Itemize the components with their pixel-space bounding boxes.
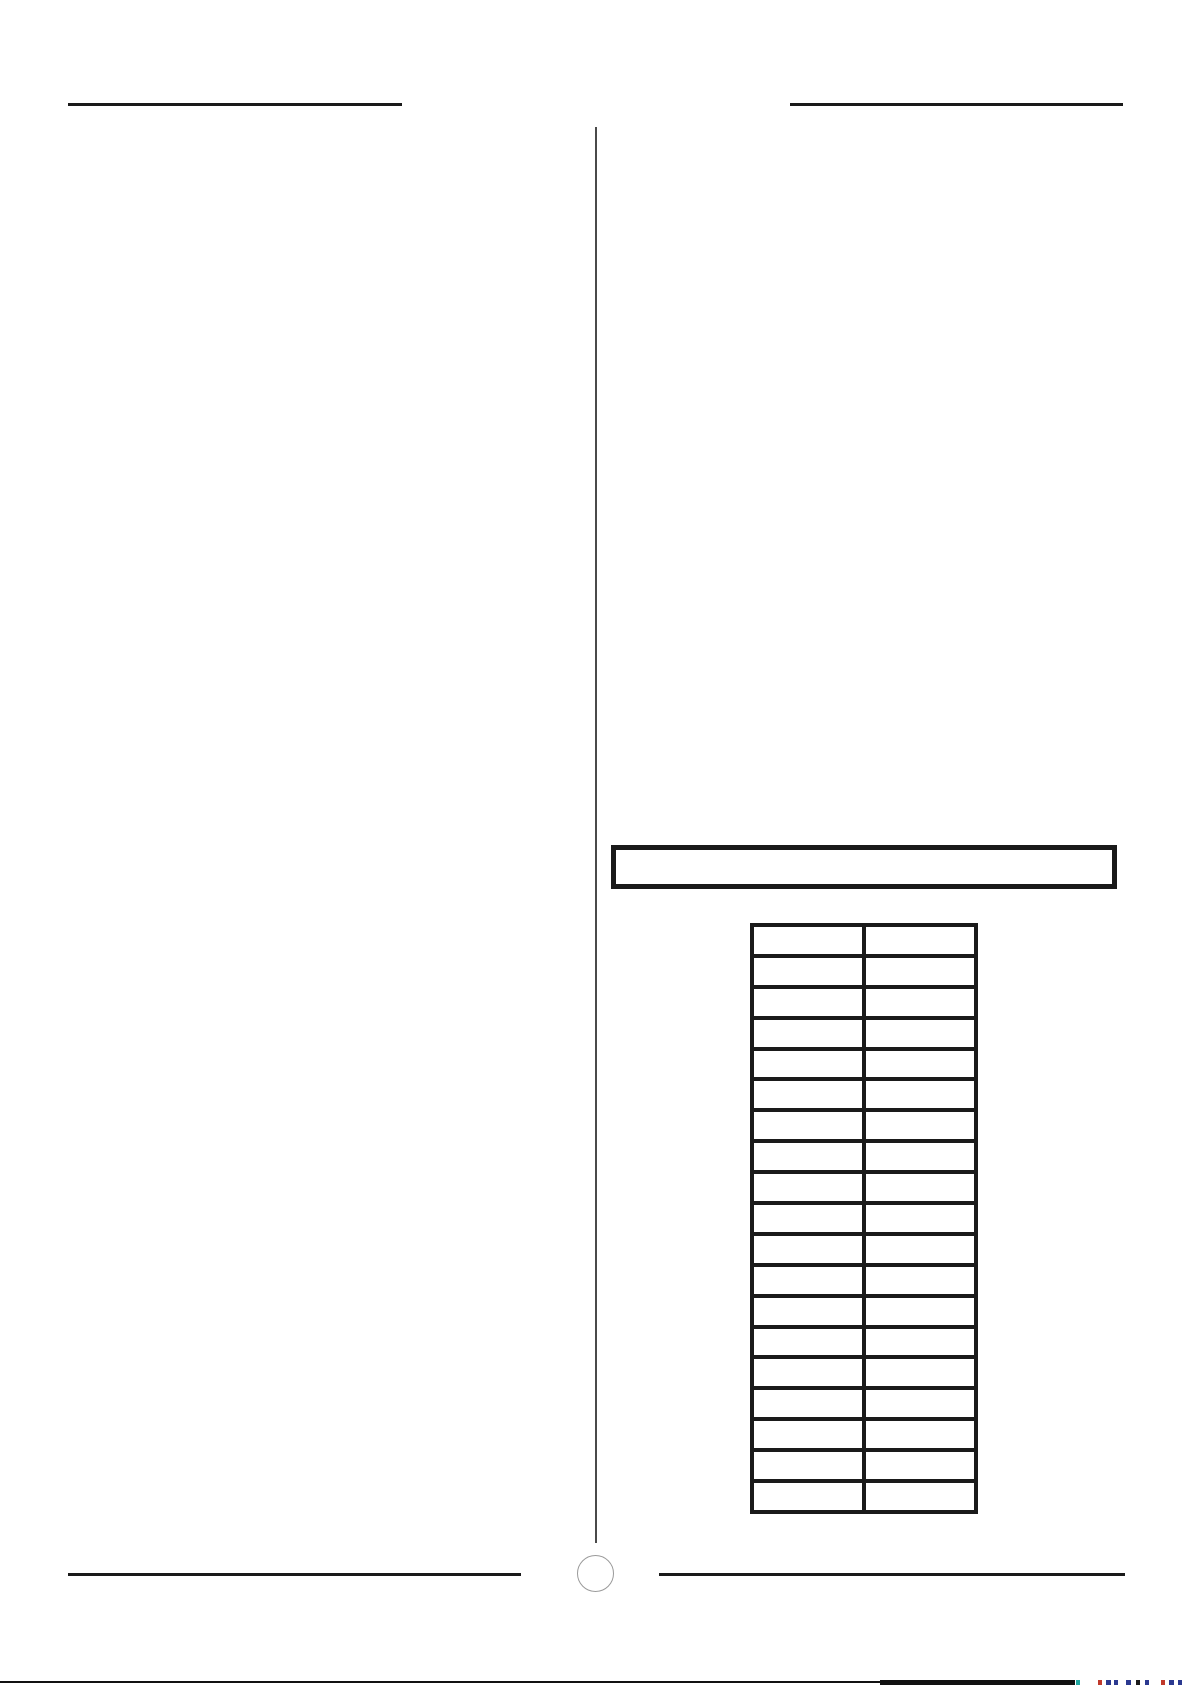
table-row: [752, 1388, 976, 1419]
header-rule-left: [68, 103, 402, 106]
table-row: [752, 1172, 976, 1203]
table-row: [752, 1018, 976, 1049]
bottom-edge-text-fragment: [1169, 1680, 1174, 1685]
blank-table: [750, 923, 978, 1514]
table-cell: [752, 1296, 864, 1327]
table-row: [752, 1357, 976, 1388]
table-row: [752, 925, 976, 956]
table-row: [752, 1450, 976, 1481]
table-cell: [752, 1018, 864, 1049]
table-cell: [752, 1450, 864, 1481]
table-cell: [864, 1018, 976, 1049]
table-row: [752, 1079, 976, 1110]
table-cell: [864, 925, 976, 956]
table-row: [752, 1265, 976, 1296]
table-cell: [864, 1388, 976, 1419]
empty-title-box: [611, 845, 1117, 889]
table-cell: [864, 1265, 976, 1296]
blank-table-body: [752, 925, 976, 1512]
bottom-edge-fragments: [0, 1679, 1192, 1685]
table-cell: [864, 1450, 976, 1481]
table-row: [752, 1141, 976, 1172]
table-row: [752, 1419, 976, 1450]
table-cell: [752, 925, 864, 956]
bottom-edge-text-fragment: [1106, 1680, 1111, 1685]
table-row: [752, 1296, 976, 1327]
table-row: [752, 1234, 976, 1265]
table-row: [752, 1110, 976, 1141]
table-cell: [752, 1265, 864, 1296]
table-cell: [752, 956, 864, 987]
table-cell: [864, 1296, 976, 1327]
bottom-edge-text-fragment: [1136, 1680, 1140, 1685]
table-cell: [752, 1419, 864, 1450]
table-row: [752, 956, 976, 987]
table-row: [752, 987, 976, 1018]
table-cell: [864, 1049, 976, 1080]
table-row: [752, 1327, 976, 1358]
footer-rule-left: [68, 1573, 521, 1576]
table-cell: [864, 1357, 976, 1388]
table-cell: [752, 1388, 864, 1419]
bottom-edge-text-fragment: [1114, 1680, 1118, 1685]
bottom-edge-text-fragment: [1098, 1680, 1102, 1685]
table-cell: [864, 1141, 976, 1172]
table-cell: [864, 1172, 976, 1203]
table-cell: [752, 1357, 864, 1388]
table-cell: [752, 1110, 864, 1141]
table-cell: [864, 1327, 976, 1358]
table-cell: [864, 1079, 976, 1110]
footer-rule-right: [659, 1573, 1125, 1576]
table-cell: [864, 1203, 976, 1234]
table-cell: [752, 1141, 864, 1172]
bottom-edge-text-fragment: [1076, 1680, 1080, 1685]
bottom-edge-text-fragment: [1126, 1680, 1131, 1685]
header-rule-right: [790, 103, 1123, 106]
table-cell: [864, 956, 976, 987]
table-cell: [864, 1419, 976, 1450]
table-cell: [752, 987, 864, 1018]
table-cell: [752, 1079, 864, 1110]
table-cell: [864, 1481, 976, 1512]
bottom-edge-text-fragment: [1161, 1680, 1165, 1685]
table-row: [752, 1049, 976, 1080]
table-cell: [864, 1110, 976, 1141]
bottom-edge-text-fragment: [1178, 1680, 1182, 1685]
table-cell: [752, 1172, 864, 1203]
table-row: [752, 1481, 976, 1512]
table-cell: [752, 1481, 864, 1512]
page-number-circle: [577, 1555, 614, 1592]
table-cell: [864, 987, 976, 1018]
table-cell: [752, 1234, 864, 1265]
bottom-edge-text-fragment: [1145, 1680, 1149, 1685]
table-cell: [864, 1234, 976, 1265]
table-cell: [752, 1203, 864, 1234]
table-cell: [752, 1049, 864, 1080]
column-divider: [595, 127, 597, 1543]
document-page: [0, 0, 1192, 1685]
table-row: [752, 1203, 976, 1234]
table-cell: [752, 1327, 864, 1358]
